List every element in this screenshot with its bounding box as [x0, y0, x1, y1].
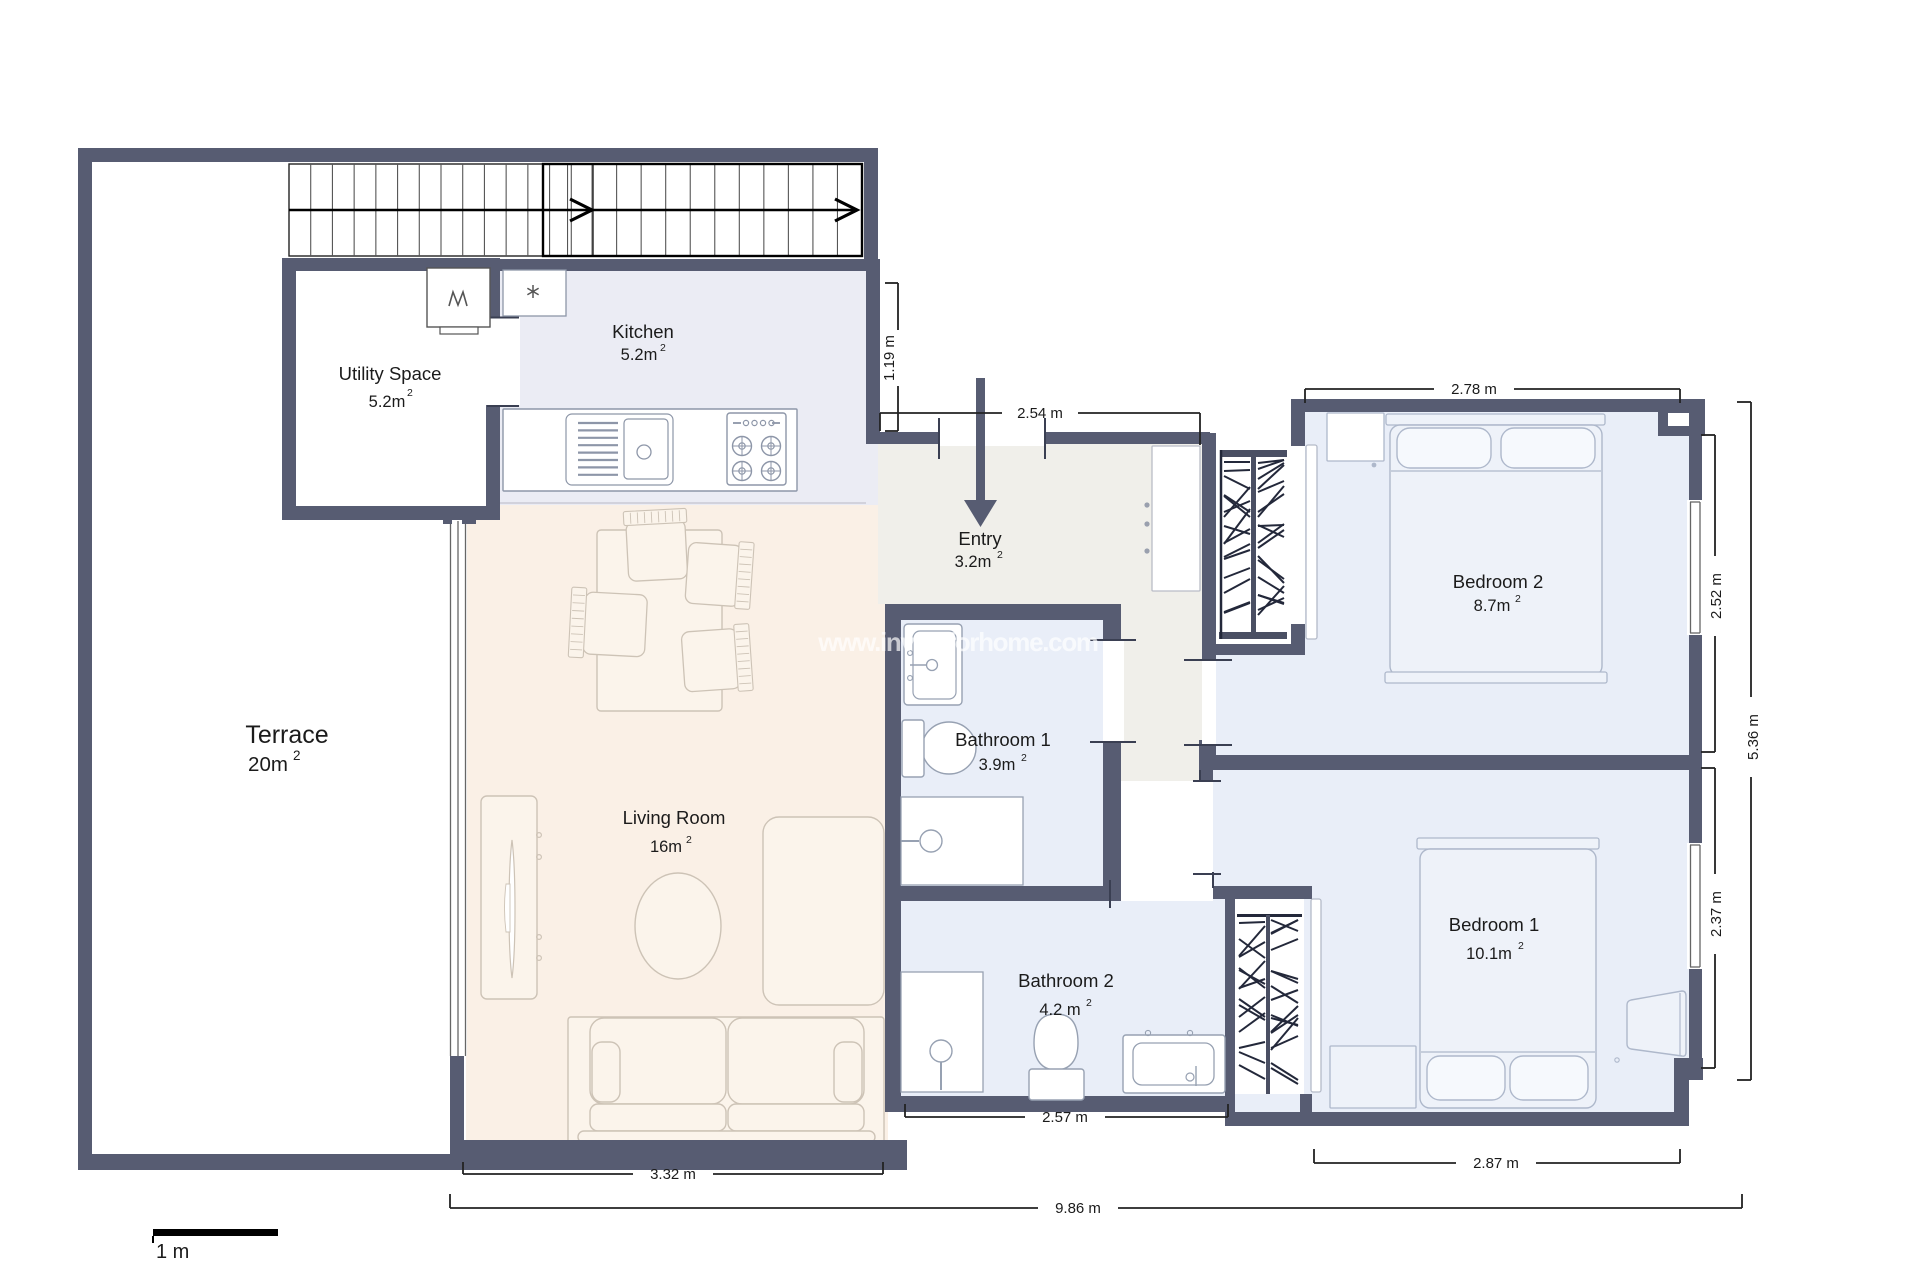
svg-text:Bedroom 1: Bedroom 1 — [1449, 914, 1540, 935]
svg-text:2: 2 — [1086, 997, 1092, 1009]
svg-text:5.36 m: 5.36 m — [1745, 714, 1762, 760]
svg-text:2.37 m: 2.37 m — [1708, 891, 1725, 937]
svg-text:1.19 m: 1.19 m — [881, 335, 898, 381]
svg-text:20m: 20m — [248, 753, 288, 776]
svg-text:Entry: Entry — [958, 528, 1002, 549]
svg-text:2.78 m: 2.78 m — [1451, 381, 1497, 398]
svg-text:Kitchen: Kitchen — [612, 321, 674, 342]
svg-text:2: 2 — [686, 834, 692, 846]
svg-text:5.2m: 5.2m — [369, 393, 406, 411]
svg-text:3.9m: 3.9m — [979, 756, 1016, 774]
svg-text:4.2 m: 4.2 m — [1039, 1001, 1080, 1019]
svg-text:2.87 m: 2.87 m — [1473, 1155, 1519, 1172]
svg-text:2.52 m: 2.52 m — [1708, 573, 1725, 619]
svg-text:2: 2 — [1515, 593, 1521, 605]
svg-text:2: 2 — [660, 342, 666, 354]
svg-text:Bathroom 1: Bathroom 1 — [955, 729, 1051, 750]
svg-text:16m: 16m — [650, 838, 682, 856]
svg-text:2: 2 — [293, 748, 301, 763]
svg-text:2: 2 — [997, 549, 1003, 561]
svg-text:2: 2 — [407, 387, 413, 399]
svg-text:5.2m: 5.2m — [621, 346, 658, 364]
svg-text:Living Room: Living Room — [623, 807, 726, 828]
svg-text:3.32 m: 3.32 m — [650, 1166, 696, 1183]
svg-text:8.7m: 8.7m — [1474, 597, 1511, 615]
svg-text:Bedroom 2: Bedroom 2 — [1453, 571, 1544, 592]
svg-text:1 m: 1 m — [156, 1241, 189, 1263]
svg-text:10.1m: 10.1m — [1466, 945, 1512, 963]
svg-text:2: 2 — [1021, 752, 1027, 764]
svg-text:www.investforhome.com: www.investforhome.com — [817, 627, 1098, 657]
svg-text:3.2m: 3.2m — [955, 553, 992, 571]
svg-text:2.57 m: 2.57 m — [1042, 1109, 1088, 1126]
svg-text:2: 2 — [1518, 940, 1524, 952]
svg-text:Bathroom 2: Bathroom 2 — [1018, 970, 1114, 991]
svg-text:Utility Space: Utility Space — [339, 363, 442, 384]
svg-text:9.86 m: 9.86 m — [1055, 1200, 1101, 1217]
svg-text:2.54 m: 2.54 m — [1017, 405, 1063, 422]
svg-text:Terrace: Terrace — [245, 721, 328, 749]
